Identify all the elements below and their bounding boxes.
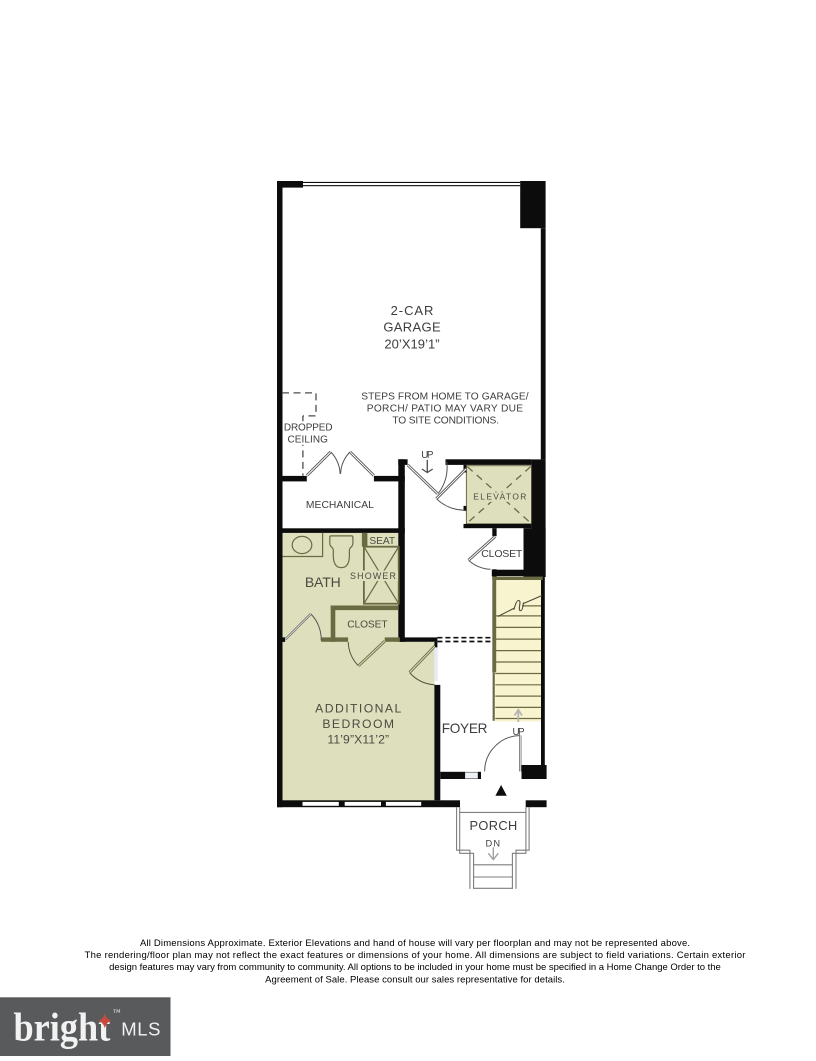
svg-text:bright: bright <box>14 1004 111 1049</box>
svg-text:SHOWER: SHOWER <box>350 571 396 581</box>
svg-text:PORCH/ PATIO MAY VARY DUE: PORCH/ PATIO MAY VARY DUE <box>367 404 524 415</box>
svg-text:TO SITE CONDITIONS.: TO SITE CONDITIONS. <box>392 415 499 426</box>
svg-text:™: ™ <box>113 1008 121 1017</box>
svg-text:MECHANICAL: MECHANICAL <box>306 500 374 511</box>
svg-text:The rendering/floor plan may n: The rendering/floor plan may not reflect… <box>85 950 746 961</box>
svg-text:UP: UP <box>513 727 525 738</box>
svg-text:MLS: MLS <box>121 1019 160 1040</box>
svg-text:design features may vary from: design features may vary from community … <box>109 962 721 973</box>
svg-text:11’9”X11’2”: 11’9”X11’2” <box>327 733 389 747</box>
svg-text:DN: DN <box>485 839 500 849</box>
svg-text:CLOSET: CLOSET <box>347 620 387 631</box>
svg-text:BEDROOM: BEDROOM <box>322 717 394 731</box>
svg-text:GARAGE: GARAGE <box>383 320 441 335</box>
svg-text:UP: UP <box>421 450 434 461</box>
svg-text:20’X19’1”: 20’X19’1” <box>384 337 439 352</box>
svg-text:ADDITIONAL: ADDITIONAL <box>315 702 401 716</box>
svg-text:ELEVATOR: ELEVATOR <box>473 492 526 502</box>
svg-text:STEPS FROM HOME TO GARAGE/: STEPS FROM HOME TO GARAGE/ <box>361 391 528 402</box>
svg-text:SEAT: SEAT <box>369 536 395 547</box>
svg-text:All Dimensions Approximate. Ex: All Dimensions Approximate. Exterior Ele… <box>140 938 690 949</box>
svg-text:DROPPED: DROPPED <box>284 423 333 434</box>
svg-text:CEILING: CEILING <box>288 435 329 446</box>
svg-text:2-CAR: 2-CAR <box>391 303 434 318</box>
svg-text:Agreement of Sale. Please con: Agreement of Sale. Please consult our sa… <box>265 974 565 985</box>
svg-text:BATH: BATH <box>305 574 341 590</box>
svg-text:CLOSET: CLOSET <box>481 548 523 560</box>
svg-text:PORCH: PORCH <box>470 818 518 833</box>
svg-text:FOYER: FOYER <box>442 721 488 736</box>
